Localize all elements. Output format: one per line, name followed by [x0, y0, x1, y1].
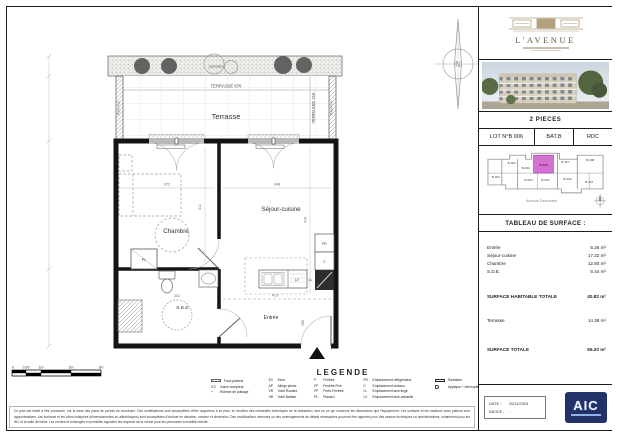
lot-row: LOT N°B 006 BAT.B RDC [479, 129, 612, 146]
legend-item: Faux-plafond [211, 379, 264, 384]
indice-value: - [509, 408, 510, 415]
brand-name: L'AVENUE [515, 35, 576, 45]
applique-symbol [435, 385, 439, 389]
legend: LEGENDE Faux-plafond GCGaine-compteur +R… [211, 368, 475, 400]
terrace-depth-dim: TERRASSE 215 [311, 92, 316, 123]
svg-text:B-006: B-006 [539, 163, 547, 167]
sejour-label: Séjour-cuisine [261, 206, 301, 213]
building-photo [479, 60, 612, 112]
terrace-width-dim: TERRASSE 670 [211, 84, 242, 89]
legend-item: FFFenêtre Fixe [314, 385, 358, 389]
table-row: Entrée5.26 m² [487, 244, 606, 252]
brand-building-icon [491, 15, 601, 33]
north-compass-icon: N [434, 19, 478, 109]
date-value: 20/11/2024 [509, 400, 528, 407]
legend-item: LLEmplacement lave-linge [364, 390, 430, 394]
svg-text:B-010: B-010 [585, 179, 593, 183]
sejour-height-dim: 473 [304, 217, 308, 223]
brand-logo: L'AVENUE [479, 7, 612, 60]
sejour-width-dim: 348 [274, 183, 280, 187]
table-row-habitable: SURFACE HABITABLE TOTALE40.82 m² [487, 293, 606, 301]
brand-subtitle-line [531, 50, 561, 51]
svg-text:B-002: B-002 [508, 161, 516, 165]
scale-tick: 0.50 [23, 366, 30, 370]
pare-vue-right-label: Pare-Vue [330, 101, 334, 115]
chambre-label: Chambre [163, 228, 189, 235]
legend-item: PLPlacard [314, 396, 358, 400]
chambre-height-dim: 411 [198, 204, 202, 210]
legend-column: FFenêtre FFFenêtre Fixe PFPorte-Fenêtre … [314, 379, 358, 400]
scale-bar: 0 0.50 1m 2m 3m [11, 364, 111, 380]
aic-logo-caption-line [571, 414, 601, 416]
svg-text:B-009: B-009 [563, 177, 571, 181]
washer-label: LL [309, 278, 313, 282]
scale-tick: 2m [69, 366, 74, 370]
legend-column: Radiateur Applique + interrupteur [435, 379, 475, 400]
placard-label: PL [142, 258, 146, 262]
fridge-label: FR [322, 242, 327, 246]
entree-width-dim: 413 [272, 294, 278, 298]
sde-label: S.D.E. [176, 305, 190, 311]
terrace: TERRASSE 670 Terrasse TERRASSE 215 Pare-… [116, 76, 336, 141]
jardiniere-strip: Jardinière [108, 54, 342, 76]
title-block: L'AVENUE [478, 7, 612, 430]
date-indice-box: DATE :20/11/2024 INDICE :- [484, 396, 546, 419]
legend-item: EVEvier [269, 379, 310, 383]
legend-item: +Robinet de puisage [211, 391, 264, 395]
lot-building: BAT.B [535, 129, 574, 145]
lot-number: LOT N°B 006 [479, 129, 535, 145]
legend-item: VBVolet Battant [269, 396, 310, 400]
svg-text:B-007: B-007 [561, 160, 569, 164]
disclaimer-text: Ce plan est établi à titre provisoire, s… [9, 406, 475, 428]
placard-closet: PL [131, 249, 157, 269]
legend-column: EVEvier APAllège pleine VRVolet Roulant … [269, 379, 310, 400]
legend-item: PFPorte-Fenêtre [314, 390, 358, 394]
table-row: Séjour-cuisine17.32 m² [487, 252, 606, 260]
lot-floor: RDC [574, 129, 612, 145]
radiateur-symbol [435, 379, 445, 382]
terrace-label: Terrasse [212, 112, 241, 121]
table-row-total: SURFACE TOTALE55.20 m² [487, 346, 606, 354]
legend-item: APAllège pleine [269, 385, 310, 389]
legend-title: LEGENDE [211, 368, 475, 377]
sde-width-dim: 202 [174, 294, 180, 298]
svg-text:B-008: B-008 [586, 158, 594, 162]
legend-item: VRVolet Roulant [269, 390, 310, 394]
aic-logo: AIC [565, 392, 607, 423]
plan-area: N [7, 7, 478, 430]
legend-item: FFenêtre [314, 379, 358, 383]
sheet-border: N [6, 6, 612, 431]
title-block-footer: DATE :20/11/2024 INDICE :- AIC [479, 385, 612, 430]
scale-tick: 0 [12, 366, 14, 370]
floor-plan: N [7, 7, 478, 363]
surface-table-title: TABLEAU DE SURFACE : [479, 215, 612, 232]
table-row-terrasse: Terrasse14.38 m² [487, 317, 606, 325]
surface-table: Entrée5.26 m² Séjour-cuisine17.32 m² Cha… [479, 232, 612, 385]
svg-text:B-003: B-003 [522, 166, 530, 170]
entree-label: Entrée [264, 315, 279, 321]
scale-tick: 1m [39, 366, 44, 370]
legend-item: Radiateur [435, 379, 475, 384]
legend-item: LVEmplacement lave-vaisselle [364, 396, 430, 400]
faux-plafond-symbol [211, 379, 221, 382]
indice-row: INDICE :- [489, 408, 541, 415]
legend-item: CEmplacement cuisson [364, 385, 430, 389]
entree-height-dim: 150 [301, 320, 305, 326]
legend-item: FREmplacement réfrigérateur [364, 379, 430, 383]
apartment-type: 2 PIECES [479, 112, 612, 129]
dimension-chain-left [47, 54, 51, 348]
street-label: Avenue Descartes [526, 198, 557, 202]
table-row: S.D.E.5.44 m² [487, 268, 606, 276]
jardiniere-label: Jardinière [209, 65, 224, 69]
svg-text:B-001: B-001 [492, 175, 500, 179]
scale-tick: 3m [99, 366, 104, 370]
legend-column: FREmplacement réfrigérateur CEmplacement… [364, 379, 430, 400]
svg-text:B-004: B-004 [525, 177, 533, 181]
plan-sheet: N [0, 0, 620, 438]
legend-column: Faux-plafond GCGaine-compteur +Robinet d… [211, 379, 264, 400]
brand-subtitle-line [523, 47, 569, 48]
svg-text:B-005: B-005 [541, 177, 549, 181]
legend-item: GCGaine-compteur [211, 386, 264, 390]
date-row: DATE :20/11/2024 [489, 400, 541, 407]
apartment-walls [116, 138, 336, 350]
table-row: Chambre12.80 m² [487, 260, 606, 268]
north-label: N [455, 60, 461, 69]
pare-vue-left-label: Pare-Vue [117, 101, 121, 115]
legend-item: Applique + interrupteur [435, 385, 475, 391]
keyplan-compass-icon [594, 193, 606, 207]
key-plan: B-002 B-003 B-006 B-007 B-008 B-001 B-00… [479, 146, 612, 215]
chambre-width-dim: 372 [164, 183, 170, 187]
aic-logo-text: AIC [573, 399, 598, 412]
